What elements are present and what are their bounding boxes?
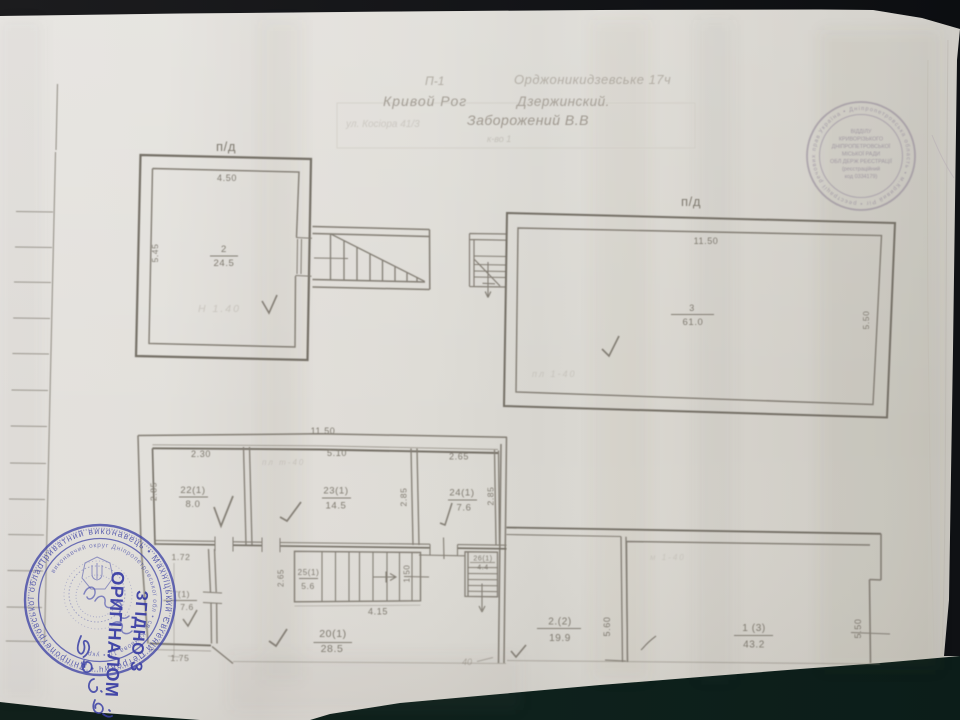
svg-text:(1): (1) <box>178 589 190 599</box>
svg-text:5.45: 5.45 <box>150 244 160 263</box>
svg-text:4.15: 4.15 <box>368 607 388 617</box>
svg-text:20(1): 20(1) <box>319 628 347 640</box>
svg-text:Орджоникидзевське 17ч: Орджоникидзевське 17ч <box>514 72 671 87</box>
svg-text:(реєстраційний: (реєстраційний <box>842 166 880 173</box>
svg-text:код 0334179): код 0334179) <box>845 174 878 180</box>
svg-text:2.85: 2.85 <box>399 488 409 507</box>
svg-text:Заборожений В.В: Заборожений В.В <box>467 112 589 128</box>
svg-text:ул. Косіора 41/3: ул. Косіора 41/3 <box>345 119 420 130</box>
svg-text:2.30: 2.30 <box>191 449 211 459</box>
svg-text:1 (3): 1 (3) <box>742 623 766 634</box>
svg-text:1.75: 1.75 <box>171 653 190 663</box>
svg-text:Дзержинский.: Дзержинский. <box>515 94 610 109</box>
svg-text:2.85: 2.85 <box>486 487 496 506</box>
svg-text:24.5: 24.5 <box>214 258 235 269</box>
svg-text:2.85: 2.85 <box>149 482 159 501</box>
svg-text:2: 2 <box>221 244 227 255</box>
svg-text:28.5: 28.5 <box>321 643 344 655</box>
svg-text:Кривой Рог: Кривой Рог <box>383 93 467 109</box>
svg-text:п/д: п/д <box>681 194 701 209</box>
svg-text:к-во 1: к-во 1 <box>487 134 511 144</box>
svg-text:ОБЛ ДЕРЖ РЕЄСТРАЦІЇ: ОБЛ ДЕРЖ РЕЄСТРАЦІЇ <box>830 158 892 165</box>
svg-text:пл т-40: пл т-40 <box>262 458 305 467</box>
svg-text:43.2: 43.2 <box>743 640 765 651</box>
svg-text:61.0: 61.0 <box>683 317 704 328</box>
svg-text:пл 1-40: пл 1-40 <box>532 369 577 379</box>
svg-text:1.72: 1.72 <box>172 552 191 562</box>
svg-text:7.6: 7.6 <box>180 602 194 612</box>
svg-text:п/д: п/д <box>216 139 236 154</box>
svg-text:КРИВОРІЗЬКОГО: КРИВОРІЗЬКОГО <box>839 137 883 143</box>
svg-text:5.10: 5.10 <box>327 448 347 458</box>
svg-text:м 1-40: м 1-40 <box>650 553 686 562</box>
svg-text:19.9: 19.9 <box>549 633 571 644</box>
svg-text:П-1: П-1 <box>425 74 444 88</box>
svg-text:ВІДДІЛУ: ВІДДІЛУ <box>851 129 872 135</box>
svg-text:5.60: 5.60 <box>602 617 612 637</box>
svg-text:2.65: 2.65 <box>449 452 469 462</box>
svg-text:3: 3 <box>689 303 695 313</box>
svg-text:22(1): 22(1) <box>180 485 205 496</box>
svg-text:МІСЬКОЇ РАДИ: МІСЬКОЇ РАДИ <box>842 151 880 158</box>
svg-text:24(1): 24(1) <box>449 488 474 499</box>
svg-text:2.(2): 2.(2) <box>548 617 572 628</box>
svg-text:23(1): 23(1) <box>323 486 348 497</box>
svg-text:5.6: 5.6 <box>301 581 315 591</box>
svg-text:14.5: 14.5 <box>326 501 347 512</box>
svg-text:8.0: 8.0 <box>185 499 200 510</box>
svg-text:25(1): 25(1) <box>298 568 320 577</box>
svg-text:4.50: 4.50 <box>217 173 237 183</box>
svg-text:40: 40 <box>462 657 472 667</box>
svg-text:11.50: 11.50 <box>694 236 719 246</box>
svg-text:1.50: 1.50 <box>403 565 412 583</box>
svg-text:Н 1.40: Н 1.40 <box>198 303 241 315</box>
svg-text:ДНІПРОПЕТРОВСЬКОЇ: ДНІПРОПЕТРОВСЬКОЇ <box>832 143 891 150</box>
svg-text:2.65: 2.65 <box>277 569 286 587</box>
svg-text:5.50: 5.50 <box>853 619 863 639</box>
svg-text:7.6: 7.6 <box>456 503 471 514</box>
svg-text:26(1): 26(1) <box>473 556 492 563</box>
svg-text:5.50: 5.50 <box>861 311 871 330</box>
